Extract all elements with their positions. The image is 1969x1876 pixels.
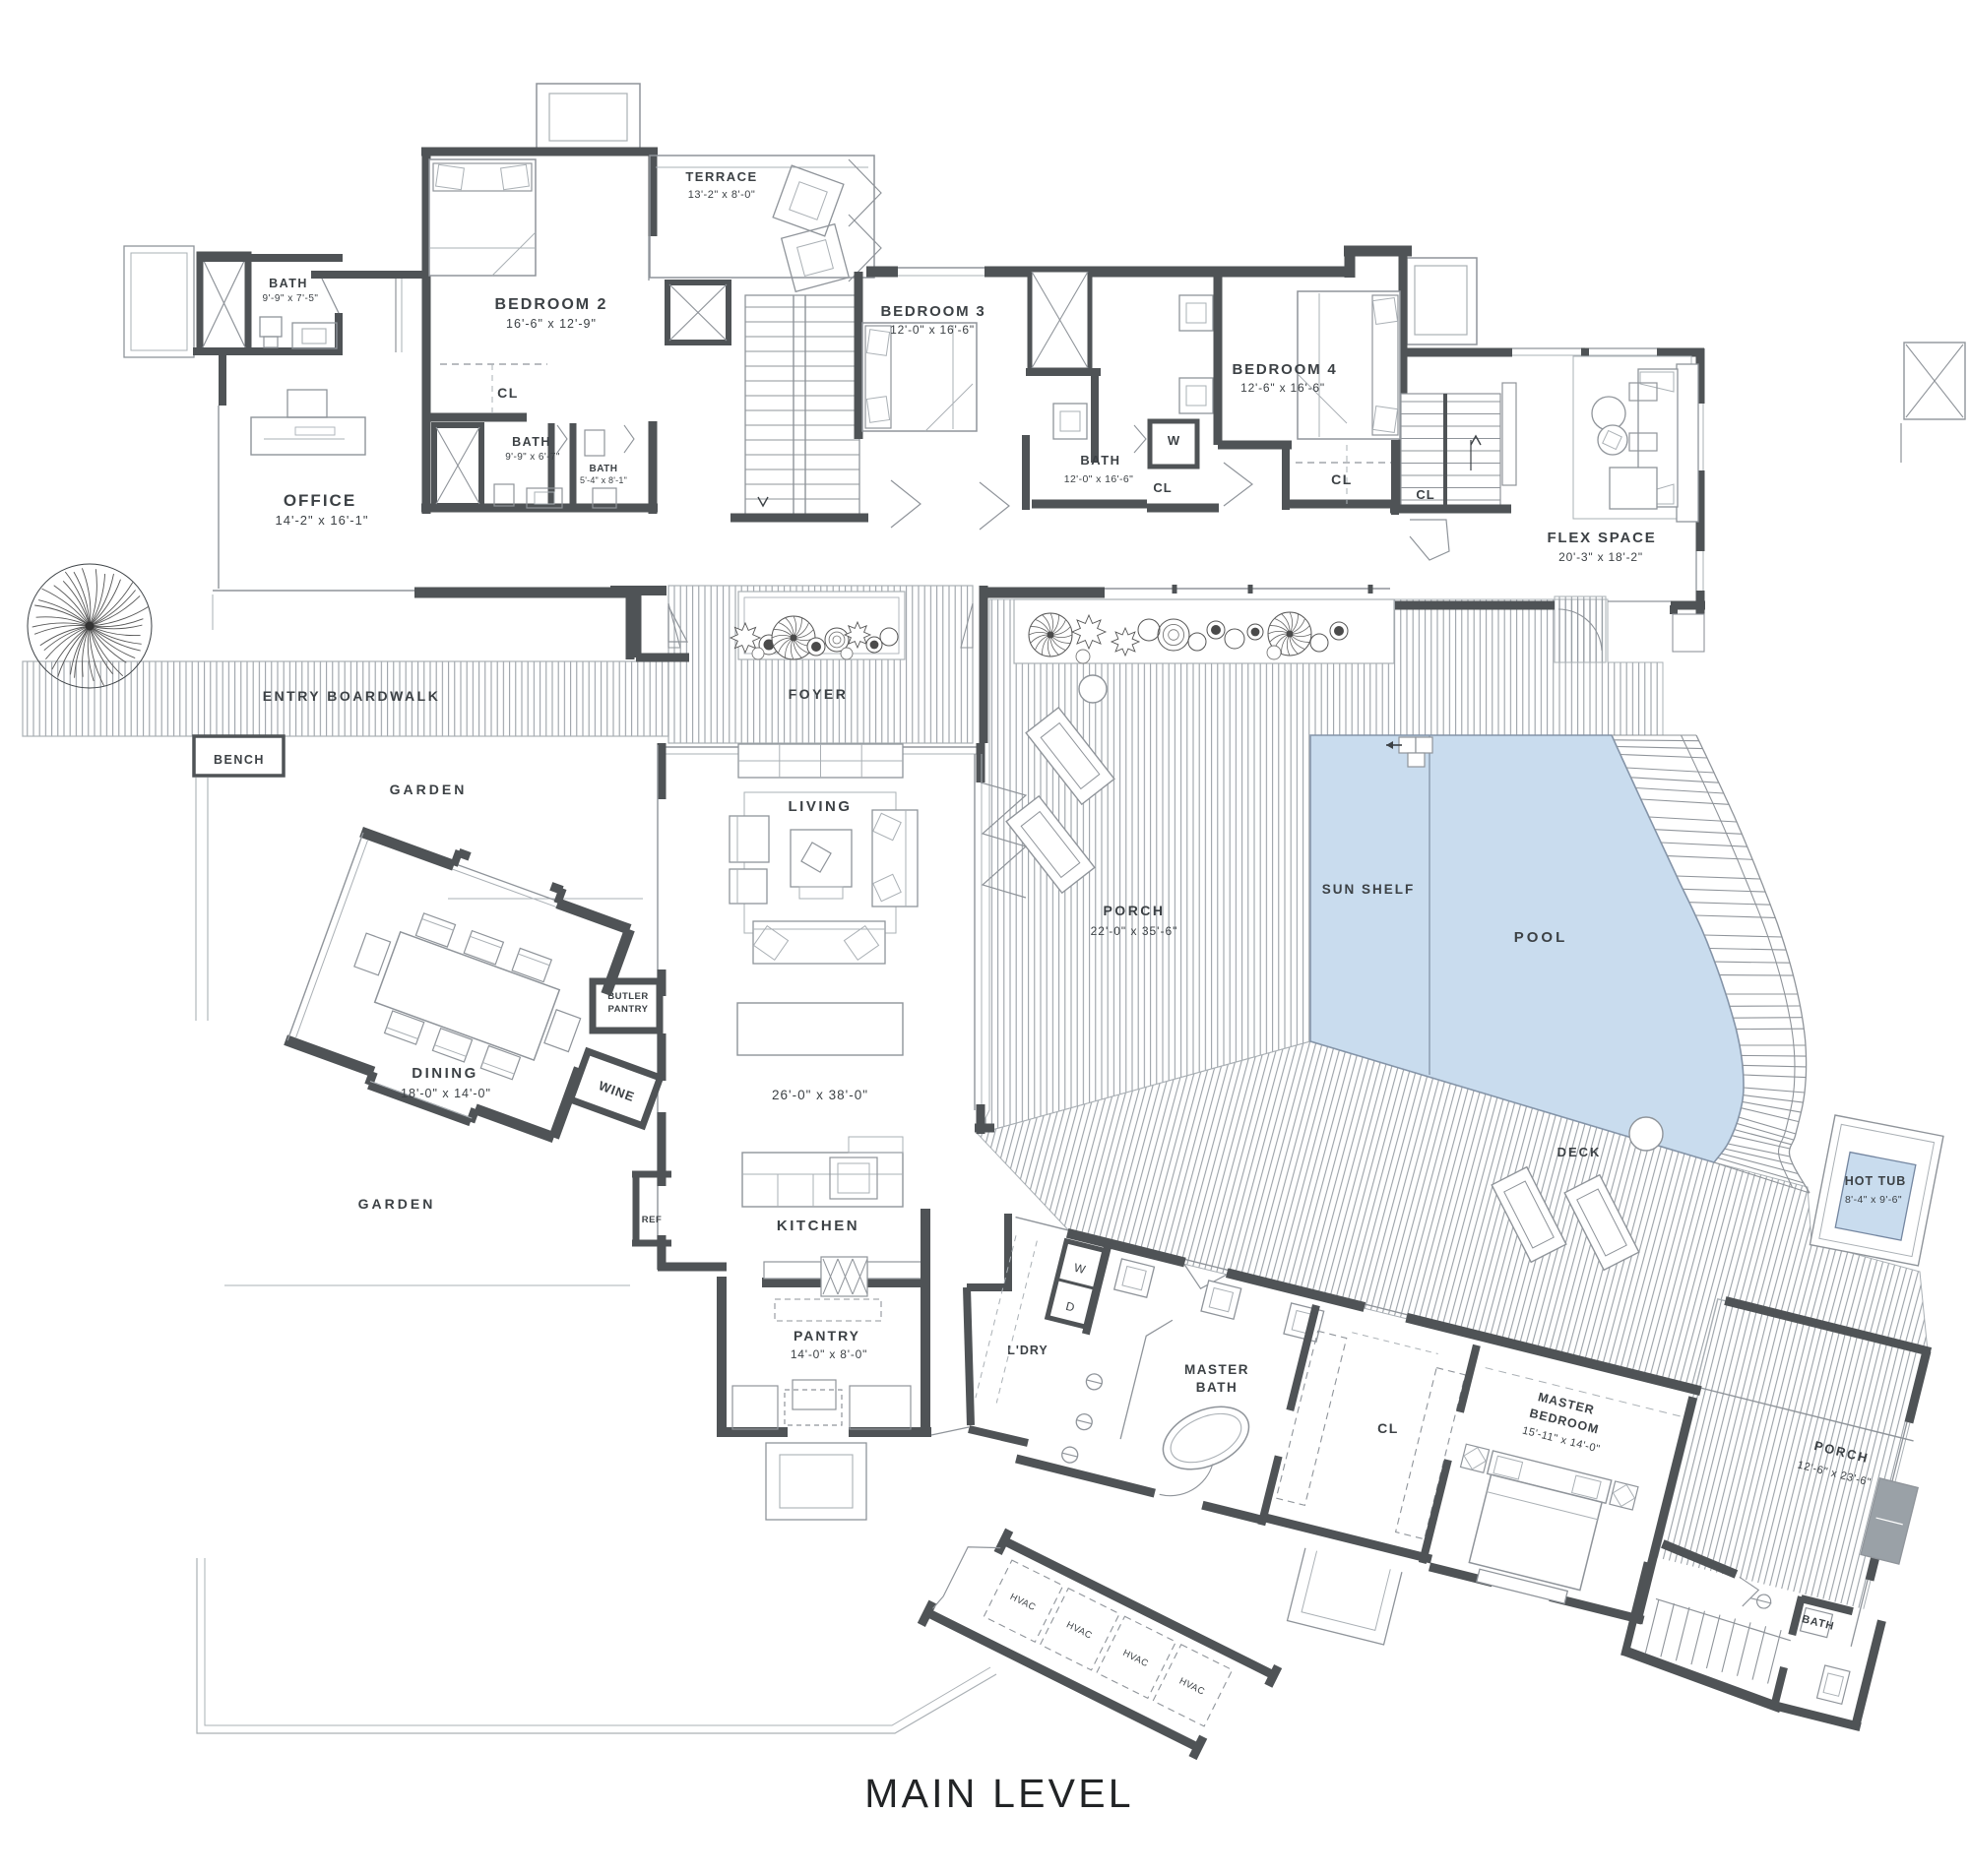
svg-text:BATH: BATH (1196, 1380, 1239, 1395)
svg-text:MAIN LEVEL: MAIN LEVEL (864, 1771, 1134, 1816)
svg-text:BATH: BATH (589, 464, 617, 474)
svg-text:26'-0" x 38'-0": 26'-0" x 38'-0" (772, 1088, 868, 1102)
svg-text:POOL: POOL (1514, 929, 1568, 946)
svg-text:BATH: BATH (1080, 453, 1120, 468)
svg-text:12'-0" x 16'-6": 12'-0" x 16'-6" (1064, 473, 1134, 485)
svg-text:9'-9" x 7'-5": 9'-9" x 7'-5" (263, 293, 319, 304)
svg-text:HOT TUB: HOT TUB (1845, 1174, 1907, 1188)
svg-text:14'-0" x 8'-0": 14'-0" x 8'-0" (791, 1347, 867, 1361)
svg-text:MASTER: MASTER (1184, 1362, 1249, 1377)
svg-text:CL: CL (1331, 471, 1353, 487)
svg-text:18'-0" x 14'-0": 18'-0" x 14'-0" (401, 1087, 491, 1100)
svg-text:L'DRY: L'DRY (1007, 1344, 1048, 1357)
svg-text:KITCHEN: KITCHEN (777, 1218, 859, 1234)
svg-text:5'-4" x 8'-1": 5'-4" x 8'-1" (580, 475, 627, 485)
svg-text:12'-0" x 16'-6": 12'-0" x 16'-6" (890, 323, 975, 337)
svg-text:ENTRY BOARDWALK: ENTRY BOARDWALK (263, 688, 441, 704)
svg-text:GARDEN: GARDEN (390, 782, 468, 797)
svg-text:TERRACE: TERRACE (685, 169, 757, 184)
svg-text:PANTRY: PANTRY (608, 1004, 649, 1015)
svg-text:SUN SHELF: SUN SHELF (1322, 882, 1416, 897)
svg-text:CL: CL (497, 385, 519, 401)
svg-text:BUTLER: BUTLER (607, 991, 649, 1002)
svg-text:DINING: DINING (412, 1065, 478, 1082)
svg-text:8'-4" x 9'-6": 8'-4" x 9'-6" (1845, 1194, 1902, 1206)
svg-text:9'-9" x 6'-7": 9'-9" x 6'-7" (505, 452, 560, 463)
svg-text:BENCH: BENCH (214, 753, 265, 767)
svg-text:OFFICE: OFFICE (284, 491, 356, 510)
svg-text:LIVING: LIVING (788, 798, 852, 815)
svg-text:DECK: DECK (1557, 1145, 1602, 1159)
svg-text:BATH: BATH (512, 435, 551, 449)
svg-text:BEDROOM 4: BEDROOM 4 (1232, 361, 1337, 378)
svg-text:BEDROOM 3: BEDROOM 3 (880, 303, 985, 320)
svg-text:FOYER: FOYER (789, 686, 849, 702)
svg-text:12'-6" x 16'-6": 12'-6" x 16'-6" (1240, 381, 1325, 395)
svg-text:CL: CL (1153, 480, 1172, 495)
svg-text:CL: CL (1416, 487, 1434, 502)
svg-text:BATH: BATH (269, 277, 308, 290)
svg-text:GARDEN: GARDEN (358, 1196, 436, 1212)
svg-text:14'-2" x 16'-1": 14'-2" x 16'-1" (276, 513, 369, 528)
svg-text:20'-3" x 18'-2": 20'-3" x 18'-2" (1558, 550, 1643, 564)
svg-text:BEDROOM 2: BEDROOM 2 (495, 296, 608, 313)
svg-text:CL: CL (1377, 1420, 1399, 1436)
svg-text:13'-2" x 8'-0": 13'-2" x 8'-0" (688, 189, 756, 201)
svg-text:REF: REF (642, 1215, 663, 1225)
svg-text:W: W (1168, 433, 1180, 448)
svg-text:PORCH: PORCH (1103, 903, 1165, 918)
svg-text:FLEX SPACE: FLEX SPACE (1547, 530, 1656, 546)
svg-text:PANTRY: PANTRY (794, 1328, 860, 1344)
svg-text:22'-0" x 35'-6": 22'-0" x 35'-6" (1091, 924, 1178, 938)
svg-text:16'-6" x 12'-9": 16'-6" x 12'-9" (506, 317, 597, 331)
